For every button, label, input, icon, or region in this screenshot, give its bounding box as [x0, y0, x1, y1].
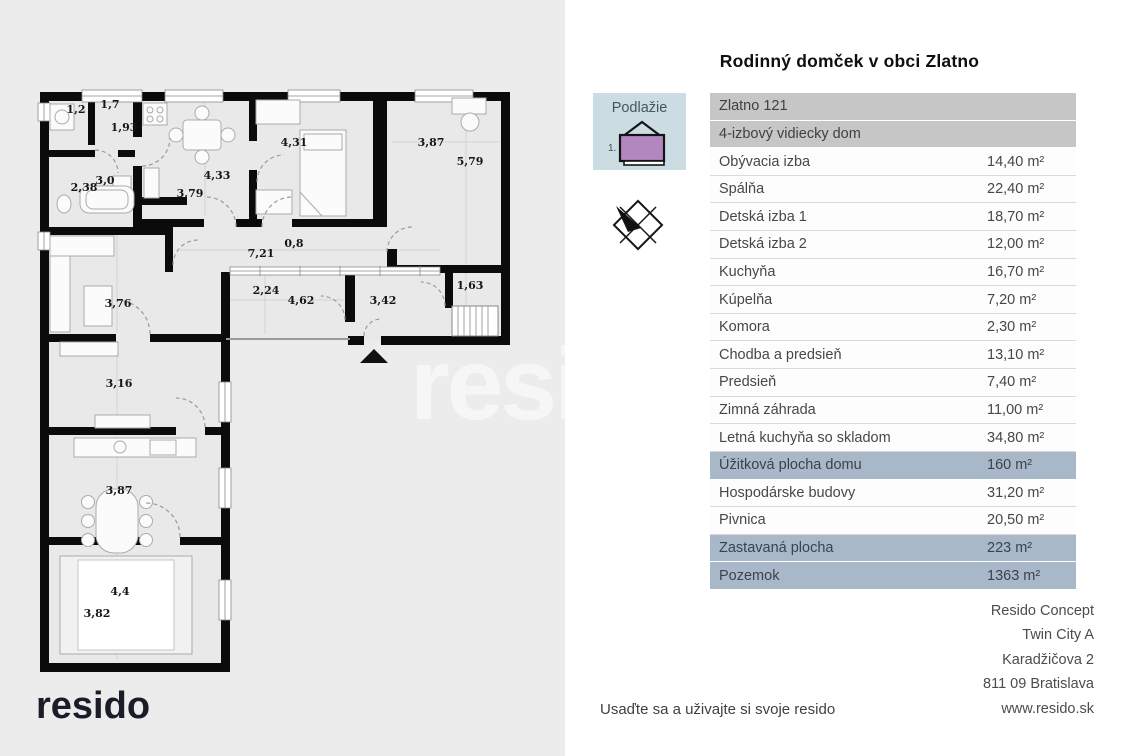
table-row: Kúpelňa7,20 m² — [710, 286, 1076, 314]
row-label: Kuchyňa — [719, 264, 987, 280]
table-row: Zlatno 121 — [710, 93, 1076, 121]
row-label: Obývacia izba — [719, 154, 987, 170]
dimension-label: 2,24 — [253, 284, 280, 297]
dimension-label: 4,33 — [204, 169, 231, 182]
row-value: 22,40 m² — [987, 181, 1076, 197]
row-label: Detská izba 2 — [719, 236, 987, 252]
table-row: 4-izbový vidiecky dom — [710, 121, 1076, 149]
row-label: Spálňa — [719, 181, 987, 197]
floor-badge-label: Podlažie — [593, 100, 686, 116]
dimension-label: 1,2 — [66, 103, 85, 116]
row-value: 160 m² — [987, 457, 1076, 473]
row-label: Zlatno 121 — [719, 98, 987, 114]
dimension-label: 3,42 — [370, 294, 397, 307]
row-label: Zimná záhrada — [719, 402, 987, 418]
floor-plan-panel: 1,21,71,933,02,384,333,794,313,875,790,8… — [0, 0, 565, 756]
dimension-label: 3,87 — [106, 484, 133, 497]
resido-logo: resido — [36, 685, 150, 728]
dimension-label: 3,87 — [418, 136, 445, 149]
table-row: Pivnica20,50 m² — [710, 507, 1076, 535]
dimension-label: 2,38 — [71, 181, 98, 194]
table-row: Zimná záhrada11,00 m² — [710, 397, 1076, 425]
dimension-label: 4,62 — [288, 294, 315, 307]
dimension-label: 4,4 — [110, 585, 129, 598]
row-label: Detská izba 1 — [719, 209, 987, 225]
table-row: Detská izba 118,70 m² — [710, 203, 1076, 231]
row-value: 223 m² — [987, 540, 1076, 556]
row-label: Pivnica — [719, 512, 987, 528]
row-value: 14,40 m² — [987, 154, 1076, 170]
row-label: Zastavaná plocha — [719, 540, 987, 556]
page: 1,21,71,933,02,384,333,794,313,875,790,8… — [0, 0, 1134, 756]
table-row: Zastavaná plocha223 m² — [710, 535, 1076, 563]
row-value: 13,10 m² — [987, 347, 1076, 363]
row-label: Letná kuchyňa so skladom — [719, 430, 987, 446]
dimension-label: 3,82 — [84, 607, 111, 620]
table-row: Detská izba 212,00 m² — [710, 231, 1076, 259]
row-value: 2,30 m² — [987, 319, 1076, 335]
dimension-label: 3,16 — [106, 377, 133, 390]
watermark: resido — [410, 326, 565, 443]
tagline: Usaďte sa a uživajte si svoje resido — [600, 701, 835, 718]
row-label: Chodba a predsieň — [719, 347, 987, 363]
row-value: 7,20 m² — [987, 292, 1076, 308]
row-value: 16,70 m² — [987, 264, 1076, 280]
contact-line: 811 09 Bratislava — [983, 672, 1094, 696]
row-value: 34,80 m² — [987, 430, 1076, 446]
dimension-label: 1,63 — [457, 279, 484, 292]
dimension-label: 5,79 — [457, 155, 484, 168]
floor-badge: Podlažie 1. — [593, 93, 686, 170]
website-link[interactable]: www.resido.sk — [983, 697, 1094, 721]
table-row: Kuchyňa16,70 m² — [710, 259, 1076, 287]
table-row: Úžitková plocha domu160 m² — [710, 452, 1076, 480]
compass-icon — [604, 191, 672, 259]
dimension-label: 1,93 — [111, 121, 138, 134]
row-label: Úžitková plocha domu — [719, 457, 987, 473]
row-value: 18,70 m² — [987, 209, 1076, 225]
table-row: Letná kuchyňa so skladom34,80 m² — [710, 424, 1076, 452]
row-value: 31,20 m² — [987, 485, 1076, 501]
row-label: Hospodárske budovy — [719, 485, 987, 501]
contact-line: Resido Concept — [983, 599, 1094, 623]
row-label: Pozemok — [719, 568, 987, 584]
row-value: 20,50 m² — [987, 512, 1076, 528]
dimension-label: 1,7 — [100, 98, 119, 111]
table-row: Pozemok1363 m² — [710, 562, 1076, 590]
table-row: Obývacia izba14,40 m² — [710, 148, 1076, 176]
row-value: 12,00 m² — [987, 236, 1076, 252]
table-row: Hospodárske budovy31,20 m² — [710, 480, 1076, 508]
dimension-label: 7,21 — [248, 247, 275, 260]
contact-line: Karadžičova 2 — [983, 648, 1094, 672]
table-row: Chodba a predsieň13,10 m² — [710, 341, 1076, 369]
dimension-label: 4,31 — [281, 136, 308, 149]
dimension-label: 3,76 — [105, 297, 132, 310]
dimension-label: 0,8 — [284, 237, 303, 250]
row-value: 1363 m² — [987, 568, 1076, 584]
dimension-label: 3,0 — [95, 174, 114, 187]
row-value: 7,40 m² — [987, 374, 1076, 390]
area-table: Zlatno 1214-izbový vidiecky domObývacia … — [710, 93, 1076, 590]
row-value: 11,00 m² — [987, 402, 1076, 418]
table-row: Spálňa22,40 m² — [710, 176, 1076, 204]
row-label: 4-izbový vidiecky dom — [719, 126, 987, 142]
table-row: Predsieň7,40 m² — [710, 369, 1076, 397]
contact-block: Resido ConceptTwin City AKaradžičova 281… — [983, 599, 1094, 721]
table-row: Komora2,30 m² — [710, 314, 1076, 342]
row-label: Predsieň — [719, 374, 987, 390]
dimension-label: 3,79 — [177, 187, 204, 200]
entrance-arrow-icon — [360, 349, 388, 363]
contact-line: Twin City A — [983, 623, 1094, 647]
row-label: Kúpelňa — [719, 292, 987, 308]
row-label: Komora — [719, 319, 987, 335]
floor-number: 1. — [608, 143, 616, 154]
house-icon: 1. — [602, 117, 678, 171]
page-title: Rodinný domček v obci Zlatno — [565, 51, 1134, 72]
